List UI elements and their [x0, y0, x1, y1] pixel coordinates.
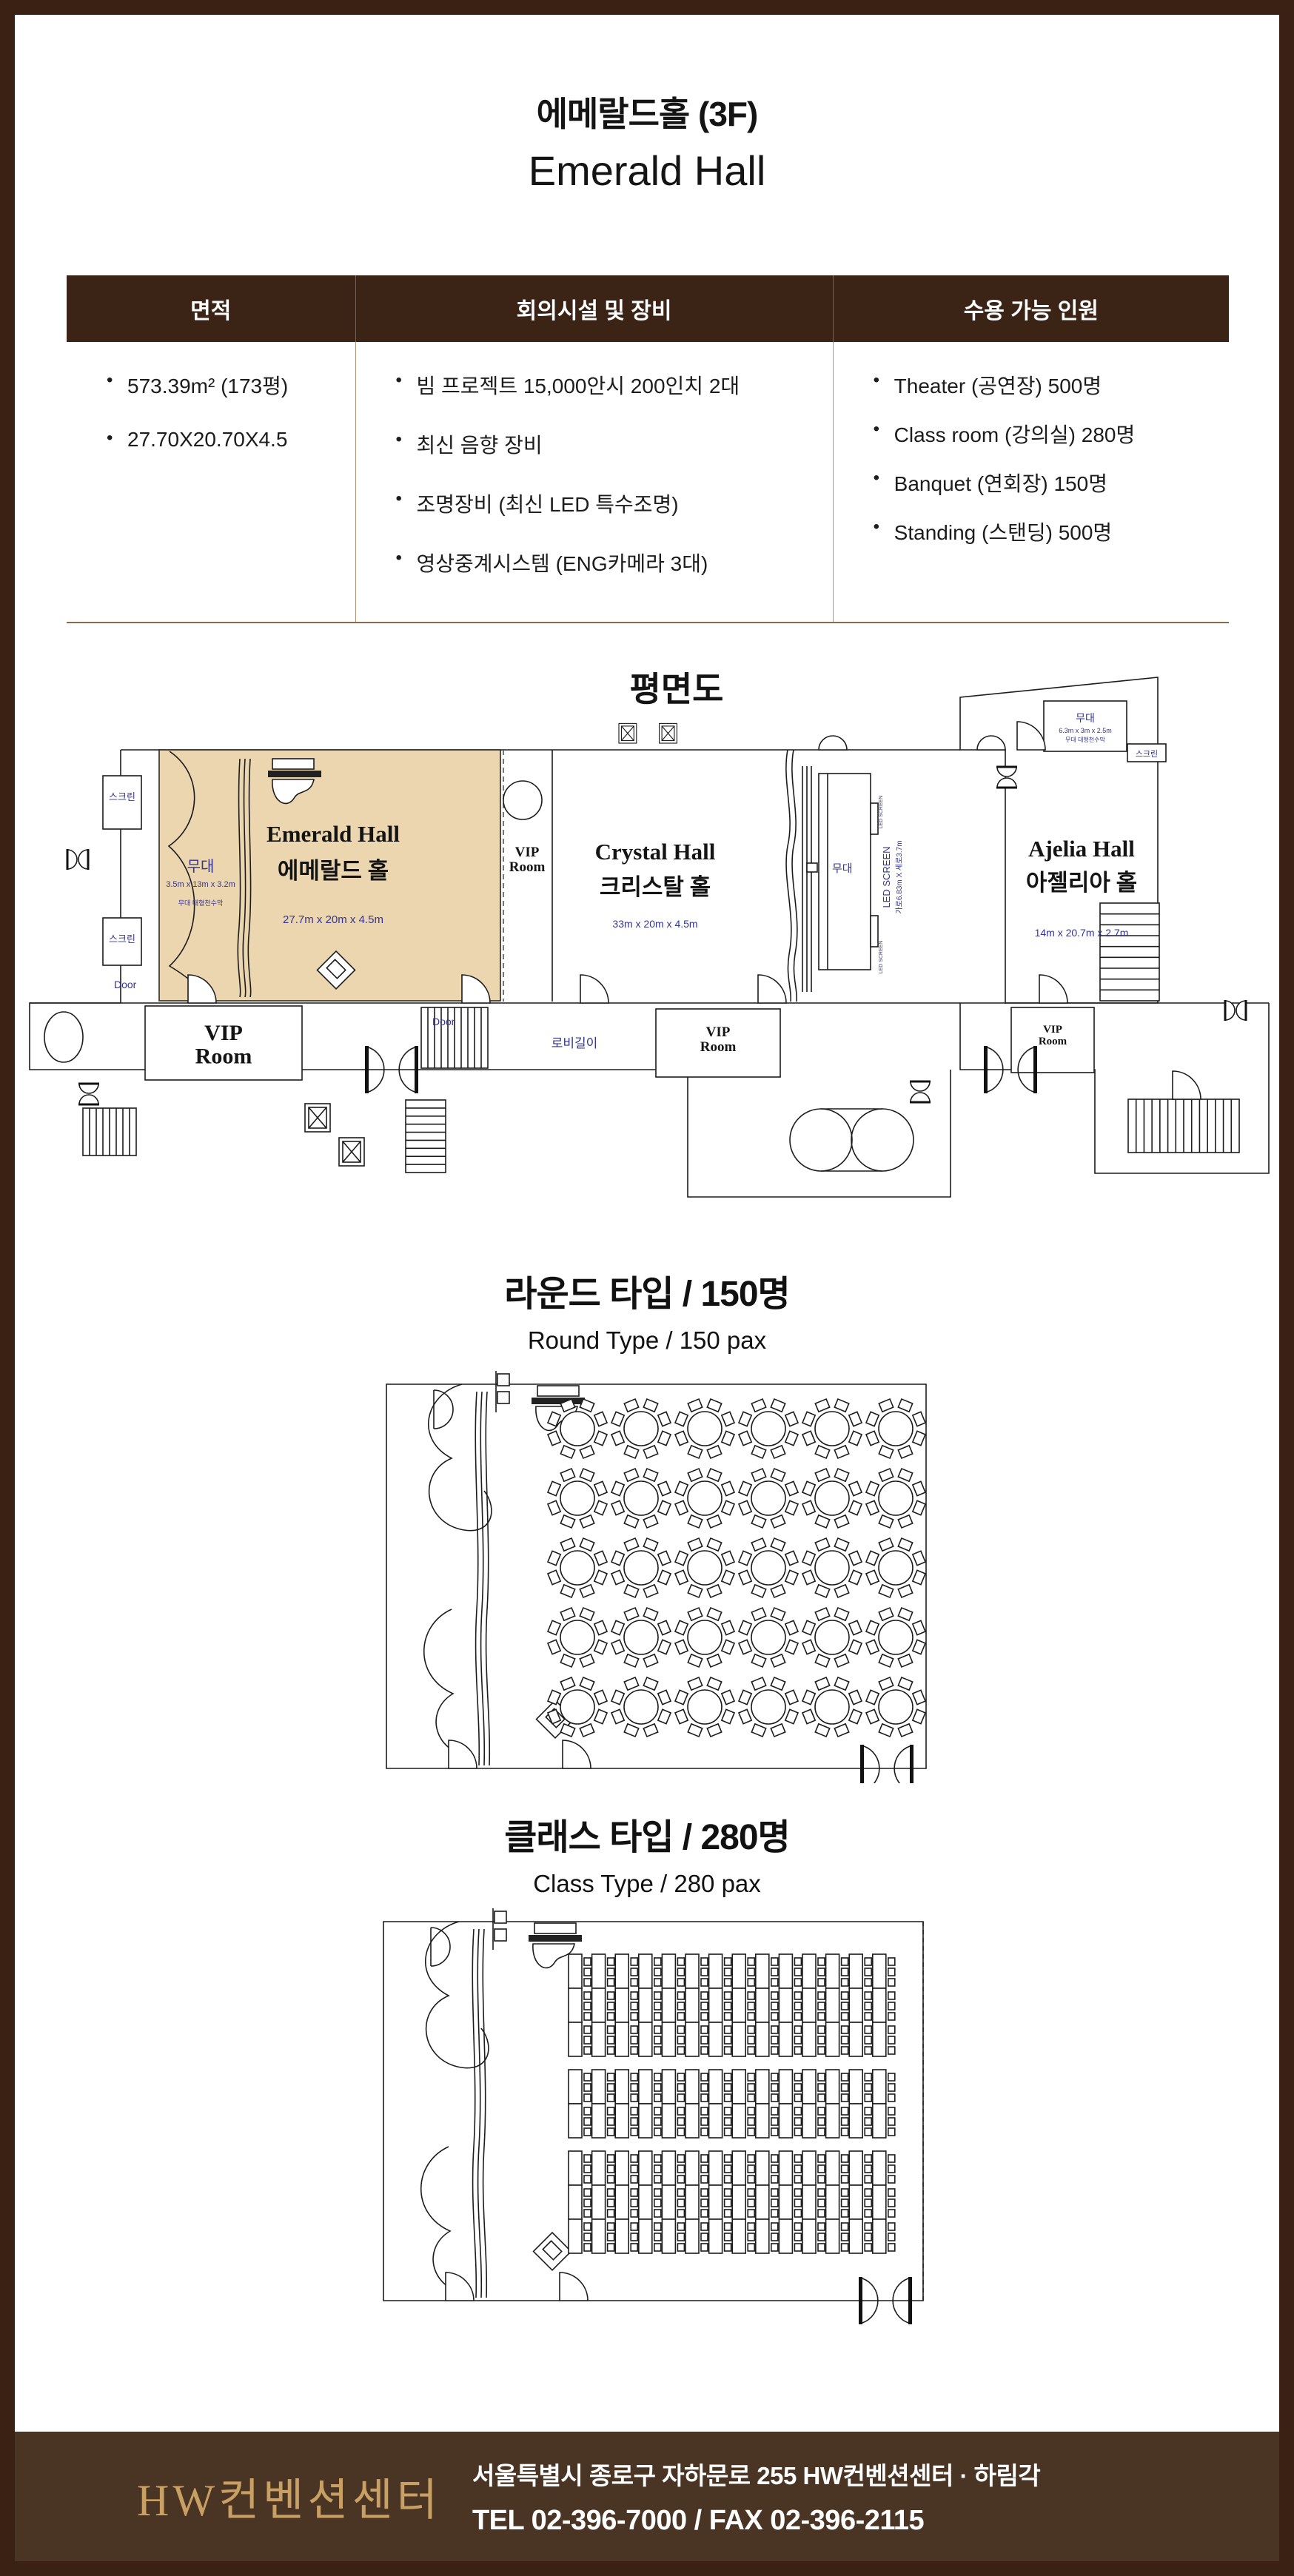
- chair-icon: [701, 2047, 708, 2054]
- chair-icon: [725, 2047, 731, 2054]
- chair-icon: [611, 1640, 624, 1654]
- chair-icon: [631, 2165, 637, 2173]
- desk: [569, 2070, 582, 2104]
- chair-icon: [677, 2176, 684, 2183]
- chair-icon: [675, 1412, 688, 1426]
- chair-icon: [584, 2223, 591, 2230]
- chair-icon: [888, 2026, 895, 2033]
- desk: [662, 2070, 675, 2104]
- chair-icon: [865, 1992, 871, 1999]
- desk: [639, 1954, 652, 1988]
- chair-icon: [688, 1446, 702, 1458]
- chair-icon: [751, 1724, 765, 1737]
- chair-icon: [794, 2199, 801, 2207]
- chair-icon: [594, 1709, 607, 1723]
- ajelia-hall-name-ko: 아젤리아 홀: [1026, 870, 1137, 896]
- desk: [592, 1954, 606, 1988]
- chair-icon: [785, 1570, 798, 1584]
- chair-icon: [771, 1979, 778, 1986]
- list-item: Theater (공연장) 500명: [872, 370, 1229, 400]
- desk: [615, 1988, 628, 2022]
- chair-icon: [707, 1677, 721, 1690]
- chair-icon: [580, 1538, 594, 1551]
- chair-icon: [785, 1620, 798, 1634]
- chair-icon: [677, 2073, 684, 2081]
- chair-icon: [725, 2094, 731, 2102]
- chair-icon: [654, 2176, 661, 2183]
- chair-icon: [707, 1608, 721, 1620]
- class-type-subtitle: Class Type / 280 pax: [0, 1870, 1294, 1898]
- chair-icon: [631, 2026, 637, 2033]
- chair-icon: [849, 1481, 862, 1495]
- desk: [639, 1988, 652, 2022]
- chair-icon: [580, 1654, 594, 1667]
- chair-icon: [594, 1620, 607, 1634]
- chair-icon: [865, 2199, 871, 2207]
- desk: [756, 2219, 769, 2253]
- chair-icon: [866, 1500, 879, 1515]
- chair-icon: [584, 2199, 591, 2207]
- chair-icon: [879, 1538, 893, 1551]
- chair-icon: [913, 1709, 925, 1723]
- chair-icon: [658, 1690, 671, 1704]
- chair-icon: [771, 1958, 778, 1965]
- round-table: [802, 1399, 862, 1458]
- chair-icon: [594, 1481, 607, 1495]
- chair-icon: [707, 1538, 721, 1551]
- desk: [615, 2185, 628, 2219]
- chair-icon: [688, 1724, 702, 1737]
- door-label: Door: [114, 979, 137, 990]
- chair-icon: [785, 1690, 798, 1704]
- desk: [873, 2022, 886, 2056]
- chair-icon: [834, 1538, 848, 1551]
- chair-icon: [631, 2036, 637, 2044]
- desk: [849, 2022, 862, 2056]
- chair-icon: [608, 2128, 614, 2136]
- chair-icon: [771, 2155, 778, 2162]
- chair-icon: [611, 1709, 624, 1723]
- desk: [756, 1988, 769, 2022]
- chair-icon: [802, 1709, 815, 1723]
- desk: [826, 2185, 839, 2219]
- chair-icon: [818, 2047, 825, 2054]
- chair-icon: [677, 1992, 684, 1999]
- chair-icon: [654, 2013, 661, 2020]
- round-table: [802, 1677, 862, 1737]
- chair-icon: [748, 2118, 754, 2125]
- chair-icon: [677, 2223, 684, 2230]
- chair-icon: [898, 1538, 912, 1551]
- chair-icon: [748, 2199, 754, 2207]
- chair-icon: [866, 1551, 879, 1565]
- round-type-section-title: 라운드 타입 / 150명 Round Type / 150 pax: [0, 1264, 1294, 1355]
- chair-icon: [677, 2165, 684, 2173]
- chair-icon: [771, 2233, 778, 2241]
- chair-icon: [842, 2094, 848, 2102]
- chair-icon: [677, 2233, 684, 2241]
- desk: [779, 2022, 792, 2056]
- chair-icon: [654, 2165, 661, 2173]
- chair-icon: [748, 2176, 754, 2183]
- chair-icon: [701, 2094, 708, 2102]
- chair-icon: [794, 2223, 801, 2230]
- chair-icon: [842, 1979, 848, 1986]
- desk: [873, 2185, 886, 2219]
- chair-icon: [739, 1640, 751, 1654]
- desk: [685, 2022, 699, 2056]
- chair-icon: [701, 2233, 708, 2241]
- desk: [615, 1954, 628, 1988]
- chair-icon: [785, 1551, 798, 1565]
- footer-contact: TEL 02-396-7000 / FAX 02-396-2115: [472, 2505, 1040, 2537]
- chair-icon: [631, 2223, 637, 2230]
- chair-icon: [834, 1446, 848, 1458]
- chair-icon: [888, 2047, 895, 2054]
- round-table: [802, 1608, 862, 1667]
- chair-icon: [584, 2013, 591, 2020]
- desk: [873, 1988, 886, 2022]
- round-table: [675, 1608, 734, 1667]
- chair-icon: [751, 1515, 765, 1528]
- chair-icon: [560, 1608, 574, 1620]
- elevator-icon: [619, 723, 637, 743]
- chair-icon: [842, 2047, 848, 2054]
- desk: [849, 2185, 862, 2219]
- desk: [756, 2151, 769, 2185]
- desk: [662, 1988, 675, 2022]
- chair-icon: [584, 2002, 591, 2010]
- chair-icon: [631, 2047, 637, 2054]
- round-table: [611, 1399, 671, 1458]
- chair-icon: [624, 1654, 638, 1667]
- chair-icon: [842, 2002, 848, 2010]
- chair-icon: [584, 2155, 591, 2162]
- chair-icon: [888, 2199, 895, 2207]
- chair-icon: [701, 1979, 708, 1986]
- chair-icon: [608, 2073, 614, 2081]
- chair-icon: [624, 1446, 638, 1458]
- screen-label: 스크린: [1136, 749, 1158, 759]
- chair-icon: [584, 1968, 591, 1976]
- chair-icon: [611, 1570, 624, 1584]
- desk: [779, 2151, 792, 2185]
- desk: [732, 2022, 745, 2056]
- chair-icon: [594, 1690, 607, 1704]
- chair-icon: [748, 2223, 754, 2230]
- chair-icon: [611, 1551, 624, 1565]
- chair-icon: [834, 1515, 848, 1528]
- chair-icon: [866, 1570, 879, 1584]
- chair-icon: [771, 2210, 778, 2217]
- chair-icon: [748, 2165, 754, 2173]
- chair-icon: [722, 1690, 734, 1704]
- elevator-icon: [305, 1104, 330, 1132]
- desk: [802, 2185, 816, 2219]
- chair-icon: [865, 2036, 871, 2044]
- list-item: Banquet (연회장) 150명: [872, 468, 1229, 497]
- chair-icon: [584, 1979, 591, 1986]
- chair-icon: [675, 1551, 688, 1565]
- chair-icon: [560, 1538, 574, 1551]
- desk: [685, 2104, 699, 2138]
- chair-icon: [865, 2223, 871, 2230]
- chair-icon: [751, 1608, 765, 1620]
- chair-icon: [865, 2026, 871, 2033]
- chair-icon: [688, 1469, 702, 1481]
- chair-icon: [815, 1724, 829, 1737]
- chair-icon: [631, 2210, 637, 2217]
- desk: [779, 2104, 792, 2138]
- chair-icon: [879, 1608, 893, 1620]
- chair-icon: [584, 2165, 591, 2173]
- chair-icon: [611, 1620, 624, 1634]
- chair-icon: [675, 1431, 688, 1445]
- desk: [685, 2219, 699, 2253]
- round-table: [802, 1538, 862, 1597]
- chair-icon: [888, 2165, 895, 2173]
- chair-icon: [725, 2036, 731, 2044]
- emerald-hall-name-ko: 에메랄드 홀: [278, 858, 389, 884]
- chair-icon: [584, 2084, 591, 2091]
- chair-icon: [818, 2199, 825, 2207]
- chair-icon: [842, 1958, 848, 1965]
- chair-icon: [818, 2165, 825, 2173]
- lobby-length-label: 로비길이: [552, 1036, 598, 1050]
- desk: [569, 2151, 582, 2185]
- round-table: [675, 1469, 734, 1528]
- chair-icon: [643, 1469, 657, 1481]
- chair-icon: [794, 2026, 801, 2033]
- vip-room-label: VIPRoom: [509, 845, 546, 875]
- round-table: [739, 1608, 798, 1667]
- chair-icon: [849, 1690, 862, 1704]
- chair-icon: [548, 1620, 560, 1634]
- chair-icon: [631, 2233, 637, 2241]
- round-type-title: 라운드 타입 / 150명: [0, 1264, 1294, 1316]
- chair-icon: [580, 1399, 594, 1412]
- chair-icon: [631, 2244, 637, 2251]
- chair-icon: [654, 2244, 661, 2251]
- chair-icon: [658, 1481, 671, 1495]
- chair-icon: [818, 2128, 825, 2136]
- desk: [639, 2151, 652, 2185]
- chair-icon: [688, 1399, 702, 1412]
- desk: [756, 2185, 769, 2219]
- desk: [569, 2022, 582, 2056]
- chair-icon: [548, 1431, 560, 1445]
- chair-icon: [677, 2155, 684, 2162]
- chair-icon: [584, 1992, 591, 1999]
- chair-icon: [548, 1500, 560, 1515]
- chair-icon: [888, 2189, 895, 2196]
- chair-icon: [584, 2210, 591, 2217]
- chair-icon: [888, 2210, 895, 2217]
- round-table: [611, 1677, 671, 1737]
- chair-icon: [560, 1446, 574, 1458]
- desk: [802, 1988, 816, 2022]
- chair-icon: [560, 1724, 574, 1737]
- floor-plan-title: 평면도: [630, 670, 724, 708]
- desk: [802, 1954, 816, 1988]
- desk: [615, 2104, 628, 2138]
- desk: [779, 2185, 792, 2219]
- chair-icon: [802, 1551, 815, 1565]
- round-table: [548, 1469, 607, 1528]
- chair-icon: [748, 2073, 754, 2081]
- chair-icon: [842, 2084, 848, 2091]
- chair-icon: [677, 1968, 684, 1976]
- chair-icon: [888, 1958, 895, 1965]
- chair-icon: [815, 1654, 829, 1667]
- chair-icon: [675, 1640, 688, 1654]
- stage-label: 무대: [832, 862, 853, 875]
- chair-icon: [631, 2199, 637, 2207]
- chair-icon: [677, 2047, 684, 2054]
- chair-icon: [879, 1399, 893, 1412]
- emerald-hall-dimensions: 27.7m x 20m x 4.5m: [283, 913, 383, 926]
- desk: [685, 2070, 699, 2104]
- chair-icon: [643, 1515, 657, 1528]
- chair-icon: [584, 2047, 591, 2054]
- round-table: [548, 1538, 607, 1597]
- chair-icon: [834, 1469, 848, 1481]
- chair-icon: [771, 2189, 778, 2196]
- equipment-cell: 빔 프로젝트 15,000안시 200인치 2대 최신 음향 장비 조명장비 (…: [355, 342, 833, 622]
- chair-icon: [688, 1538, 702, 1551]
- chair-icon: [584, 2107, 591, 2115]
- chair-icon: [624, 1399, 638, 1412]
- desk: [592, 2219, 606, 2253]
- chair-icon: [771, 1585, 785, 1597]
- round-table: [675, 1538, 734, 1597]
- chair-icon: [677, 2199, 684, 2207]
- desk: [569, 1954, 582, 1988]
- chair-icon: [608, 2189, 614, 2196]
- chair-icon: [771, 1677, 785, 1690]
- led-screen-label: LED SCREEN: [879, 941, 884, 974]
- chair-icon: [548, 1570, 560, 1584]
- chair-icon: [611, 1500, 624, 1515]
- chair-icon: [818, 2118, 825, 2125]
- chair-icon: [580, 1515, 594, 1528]
- chair-icon: [842, 2199, 848, 2207]
- brand-logo: HW컨벤션센터: [15, 2464, 441, 2529]
- chair-icon: [842, 2210, 848, 2217]
- desk: [732, 1954, 745, 1988]
- chair-icon: [866, 1431, 879, 1445]
- chair-icon: [722, 1551, 734, 1565]
- desk: [639, 2219, 652, 2253]
- chair-icon: [631, 1968, 637, 1976]
- chair-icon: [580, 1446, 594, 1458]
- chair-icon: [771, 1446, 785, 1458]
- chair-icon: [643, 1677, 657, 1690]
- desk: [685, 2185, 699, 2219]
- list-item: 573.39m² (173평): [105, 370, 355, 400]
- chair-icon: [771, 2073, 778, 2081]
- desk: [756, 2104, 769, 2138]
- chair-icon: [771, 2107, 778, 2115]
- chair-icon: [818, 1979, 825, 1986]
- info-table-header-row: 면적 회의시설 및 장비 수용 가능 인원: [67, 275, 1229, 342]
- chair-icon: [643, 1538, 657, 1551]
- chair-icon: [643, 1446, 657, 1458]
- capacity-cell: Theater (공연장) 500명 Class room (강의실) 280명…: [833, 342, 1229, 622]
- desk: [662, 2104, 675, 2138]
- chair-icon: [701, 2002, 708, 2010]
- col-header-area: 면적: [67, 275, 355, 342]
- chair-icon: [658, 1551, 671, 1565]
- chair-icon: [654, 2073, 661, 2081]
- desk: [873, 2151, 886, 2185]
- door-arc-icon: [446, 2273, 474, 2301]
- chair-icon: [866, 1481, 879, 1495]
- chair-icon: [739, 1412, 751, 1426]
- chair-icon: [815, 1608, 829, 1620]
- chair-icon: [818, 2026, 825, 2033]
- desk: [826, 1954, 839, 1988]
- chair-icon: [879, 1724, 893, 1737]
- chair-icon: [631, 2107, 637, 2115]
- chair-icon: [631, 2002, 637, 2010]
- round-table: [611, 1538, 671, 1597]
- chair-icon: [794, 2128, 801, 2136]
- chair-icon: [701, 2176, 708, 2183]
- desk: [826, 2022, 839, 2056]
- chair-icon: [842, 2026, 848, 2033]
- chair-icon: [707, 1399, 721, 1412]
- round-table: [739, 1538, 798, 1597]
- chair-icon: [548, 1481, 560, 1495]
- desk: [802, 2151, 816, 2185]
- chair-icon: [913, 1412, 925, 1426]
- ajelia-hall-name-en: Ajelia Hall: [1028, 836, 1135, 862]
- chair-icon: [707, 1724, 721, 1737]
- chair-icon: [898, 1515, 912, 1528]
- chair-icon: [701, 2223, 708, 2230]
- chair-icon: [794, 2155, 801, 2162]
- chair-icon: [654, 2107, 661, 2115]
- chair-icon: [802, 1620, 815, 1634]
- chair-icon: [865, 2176, 871, 2183]
- chair-icon: [707, 1446, 721, 1458]
- chair-icon: [624, 1724, 638, 1737]
- chair-icon: [658, 1709, 671, 1723]
- chair-icon: [624, 1585, 638, 1597]
- chair-icon: [888, 2244, 895, 2251]
- chair-icon: [849, 1431, 862, 1445]
- chair-icon: [842, 2244, 848, 2251]
- chair-icon: [658, 1570, 671, 1584]
- chair-icon: [771, 1724, 785, 1737]
- chair-icon: [771, 2223, 778, 2230]
- chair-icon: [794, 2176, 801, 2183]
- chair-icon: [771, 1992, 778, 1999]
- desk: [873, 2104, 886, 2138]
- chair-icon: [722, 1500, 734, 1515]
- chair-icon: [865, 2107, 871, 2115]
- chair-icon: [725, 2073, 731, 2081]
- chair-icon: [879, 1446, 893, 1458]
- desk: [873, 2219, 886, 2253]
- chair-icon: [584, 2244, 591, 2251]
- chair-icon: [771, 2094, 778, 2102]
- chair-icon: [701, 2155, 708, 2162]
- chair-icon: [608, 2036, 614, 2044]
- chair-icon: [608, 2223, 614, 2230]
- chair-icon: [818, 1968, 825, 1976]
